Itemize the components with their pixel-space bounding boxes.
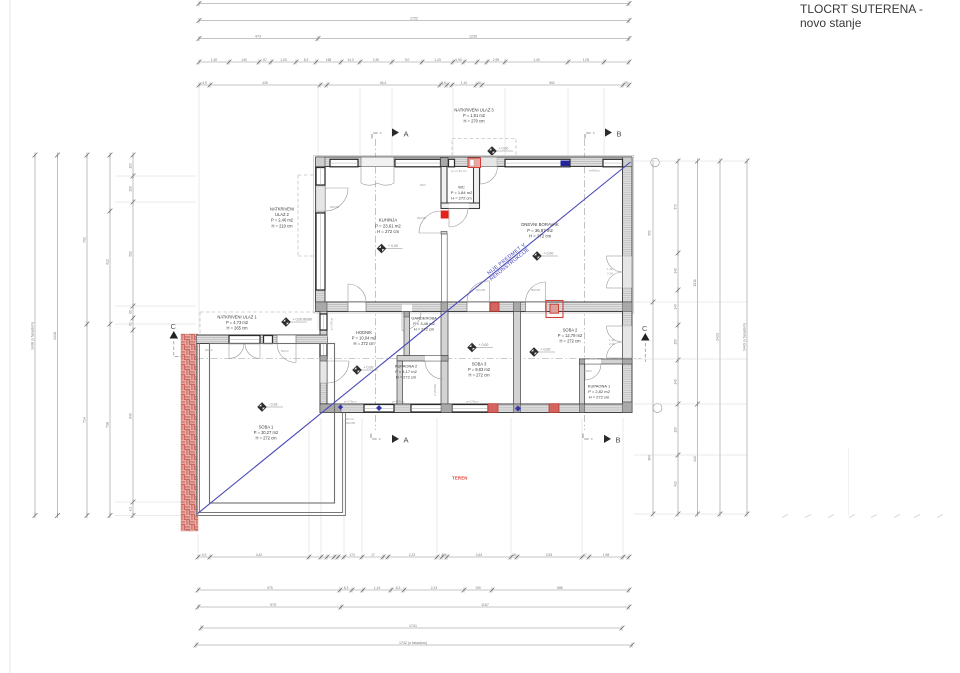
- svg-text:412: 412: [693, 456, 697, 462]
- svg-text:60: 60: [129, 310, 133, 314]
- svg-text:TLOCRT SUTERENA -: TLOCRT SUTERENA -: [800, 2, 923, 16]
- svg-text:174: 174: [349, 553, 355, 557]
- svg-text:P = 23,61 m2: P = 23,61 m2: [375, 223, 401, 228]
- svg-text:168: 168: [326, 58, 332, 62]
- svg-text:SOBA 1: SOBA 1: [259, 425, 274, 430]
- svg-text:412: 412: [106, 259, 110, 265]
- svg-text:H = 210 cm: H = 210 cm: [271, 223, 293, 228]
- svg-text:1741: 1741: [409, 624, 417, 628]
- svg-text:1418: 1418: [53, 332, 57, 340]
- svg-text:17: 17: [583, 553, 587, 557]
- svg-text:+ 0,00: + 0,00: [499, 147, 509, 151]
- svg-text:1,40: 1,40: [607, 267, 613, 271]
- svg-text:16: 16: [477, 81, 481, 85]
- svg-text:702: 702: [83, 237, 87, 243]
- svg-text:NATKRIVENI ULAZ 3: NATKRIVENI ULAZ 3: [454, 108, 494, 113]
- svg-text:2,20: 2,20: [607, 272, 613, 276]
- svg-text:2.VISINE: 2.VISINE: [433, 384, 437, 396]
- svg-text:1,05: 1,05: [583, 58, 590, 62]
- svg-text:SOBA 3: SOBA 3: [472, 362, 487, 367]
- svg-text:4,9: 4,9: [129, 507, 133, 512]
- svg-text:H = 272 cm: H = 272 cm: [377, 229, 400, 234]
- svg-text:552: 552: [549, 81, 555, 85]
- svg-text:NATKRIVENI: NATKRIVENI: [270, 207, 294, 212]
- svg-text:1,14: 1,14: [374, 586, 381, 590]
- svg-text:p=178cm: p=178cm: [344, 400, 357, 404]
- svg-text:90/14: 90/14: [205, 348, 213, 352]
- svg-text:4,9: 4,9: [202, 553, 207, 557]
- svg-text:502: 502: [129, 251, 133, 257]
- svg-text:H = 272 cm: H = 272 cm: [396, 375, 417, 380]
- svg-text:P = 4,73 m2: P = 4,73 m2: [226, 320, 249, 325]
- svg-text:H = 272 cm: H = 272 cm: [255, 436, 277, 441]
- svg-text:738: 738: [106, 422, 110, 428]
- svg-text:575: 575: [267, 586, 273, 590]
- svg-text:1230: 1230: [469, 34, 477, 38]
- svg-text:90/1: 90/1: [420, 183, 426, 187]
- svg-text:P = 4,17 m2: P = 4,17 m2: [395, 369, 417, 374]
- svg-text:1,98: 1,98: [603, 553, 610, 557]
- svg-text:2,30: 2,30: [609, 342, 615, 346]
- svg-text:1,00: 1,00: [280, 58, 287, 62]
- svg-text:+ 0,00: + 0,00: [541, 348, 551, 352]
- svg-text:90/205: 90/205: [330, 205, 340, 209]
- svg-text:1,30: 1,30: [211, 58, 218, 62]
- svg-text:+ 0,00: + 0,00: [388, 244, 398, 248]
- svg-text:novo stanje: novo stanje: [800, 16, 862, 30]
- svg-text:p=89cm: p=89cm: [589, 169, 600, 173]
- svg-text:90/205: 90/205: [531, 288, 541, 292]
- svg-text:412: 412: [674, 481, 678, 487]
- svg-text:150: 150: [674, 339, 678, 345]
- svg-text:H = 272 cm: H = 272 cm: [414, 327, 435, 332]
- svg-text:p=+1,30 cm: p=+1,30 cm: [451, 169, 467, 173]
- svg-text:4,9: 4,9: [202, 81, 207, 85]
- svg-text:190: 190: [475, 586, 481, 590]
- svg-text:P = 2,46 m2: P = 2,46 m2: [271, 218, 294, 223]
- svg-text:H = 272 cm: H = 272 cm: [559, 339, 581, 344]
- svg-text:B: B: [616, 436, 621, 445]
- svg-text:379: 379: [674, 204, 678, 210]
- svg-text:9,0: 9,0: [405, 58, 410, 62]
- svg-text:575: 575: [270, 603, 276, 607]
- svg-text:8,5: 8,5: [441, 81, 446, 85]
- svg-text:103: 103: [129, 163, 133, 169]
- svg-text:C: C: [642, 324, 648, 333]
- svg-text:P = 9,83 m2: P = 9,83 m2: [468, 367, 491, 372]
- svg-text:1511: 1511: [693, 279, 697, 287]
- svg-text:67: 67: [263, 58, 267, 62]
- svg-text:GARDEROBA: GARDEROBA: [411, 316, 437, 321]
- svg-text:143: 143: [674, 304, 678, 310]
- svg-text:1,93: 1,93: [455, 58, 462, 62]
- svg-text:1167: 1167: [481, 603, 489, 607]
- svg-text:2,30: 2,30: [373, 58, 380, 62]
- svg-text:140: 140: [674, 268, 678, 274]
- svg-text:ULAZ 2: ULAZ 2: [275, 212, 290, 217]
- svg-text:25: 25: [624, 81, 628, 85]
- svg-text:1722: 1722: [410, 16, 418, 20]
- svg-text:425: 425: [262, 81, 268, 85]
- svg-text:640: 640: [129, 413, 133, 419]
- svg-text:H = 265 cm: H = 265 cm: [226, 326, 248, 331]
- svg-text:1742 (s fasadom): 1742 (s fasadom): [399, 641, 427, 645]
- svg-text:1,43: 1,43: [434, 58, 441, 62]
- svg-text:H = 272 cm: H = 272 cm: [529, 234, 552, 239]
- svg-text:90/205: 90/205: [346, 421, 356, 425]
- svg-text:2,53: 2,53: [546, 553, 553, 557]
- svg-text:HODNIK: HODNIK: [356, 330, 372, 335]
- svg-text:H = 270 cm: H = 270 cm: [463, 119, 485, 124]
- svg-text:1,10: 1,10: [461, 81, 468, 85]
- svg-text:P = 10,04 m2: P = 10,04 m2: [352, 336, 377, 341]
- svg-text:+ 0,00 80/80: + 0,00 80/80: [293, 318, 313, 322]
- svg-text:P = 36,87 m2: P = 36,87 m2: [527, 228, 553, 233]
- svg-text:18: 18: [512, 553, 516, 557]
- svg-text:WC: WC: [458, 185, 465, 190]
- svg-text:1438 (s fasadom): 1438 (s fasadom): [31, 322, 35, 350]
- svg-text:50/14: 50/14: [281, 349, 289, 353]
- svg-text:C: C: [171, 322, 177, 331]
- svg-text:8,5: 8,5: [442, 553, 447, 557]
- svg-text:H = 272 cm: H = 272 cm: [451, 196, 472, 201]
- svg-text:2,99: 2,99: [493, 58, 500, 62]
- svg-text:46,4: 46,4: [380, 81, 387, 85]
- svg-text:473: 473: [255, 34, 261, 38]
- svg-text:1,40: 1,40: [533, 58, 540, 62]
- svg-text:H = 272 cm: H = 272 cm: [468, 373, 490, 378]
- svg-text:H = 272 cm: H = 272 cm: [589, 395, 610, 400]
- svg-text:P = 2,82 m2: P = 2,82 m2: [588, 389, 610, 394]
- svg-text:H = 272 cm: H = 272 cm: [353, 341, 375, 346]
- svg-text:1423: 1423: [716, 333, 720, 341]
- svg-text:502: 502: [648, 230, 652, 236]
- svg-text:+ 0,00: + 0,00: [364, 366, 374, 370]
- svg-text:2,22: 2,22: [409, 553, 416, 557]
- svg-text:P = 1,91 m2: P = 1,91 m2: [463, 113, 486, 118]
- svg-text:- 0,33: - 0,33: [269, 403, 278, 407]
- svg-text:14,3: 14,3: [347, 58, 354, 62]
- svg-text:p=178cm: p=178cm: [392, 400, 405, 404]
- svg-text:KUPAONA 2: KUPAONA 2: [395, 364, 418, 369]
- svg-text:p=178cm: p=178cm: [466, 400, 479, 404]
- svg-text:B: B: [617, 129, 622, 138]
- svg-text:8,3: 8,3: [396, 586, 401, 590]
- svg-text:2,63: 2,63: [476, 553, 483, 557]
- svg-text:+ 0,00: + 0,00: [479, 343, 489, 347]
- svg-text:KUPAONA 1: KUPAONA 1: [588, 384, 611, 389]
- svg-text:60/2: 60/2: [586, 369, 592, 373]
- svg-text:SOBA 2: SOBA 2: [563, 328, 578, 333]
- svg-text:NATKRIVENI ULAZ 1: NATKRIVENI ULAZ 1: [217, 315, 257, 320]
- svg-text:2,13: 2,13: [431, 586, 438, 590]
- svg-text:364: 364: [648, 455, 652, 461]
- svg-text:4,42: 4,42: [256, 553, 263, 557]
- svg-text:686: 686: [557, 586, 563, 590]
- svg-text:+ 0,00: + 0,00: [544, 252, 554, 256]
- svg-text:17: 17: [371, 553, 375, 557]
- svg-text:P = 3,46 m2: P = 3,46 m2: [413, 321, 435, 326]
- svg-text:90/205: 90/205: [476, 288, 486, 292]
- svg-text:140: 140: [674, 379, 678, 385]
- svg-text:1443 (s fasadom): 1443 (s fasadom): [743, 323, 747, 351]
- svg-text:KUHINJA: KUHINJA: [379, 218, 398, 223]
- svg-text:DNEVNI BORAVAK: DNEVNI BORAVAK: [521, 222, 559, 227]
- svg-text:P = 30,27 m2: P = 30,27 m2: [254, 430, 279, 435]
- svg-text:P = 1,84 m2: P = 1,84 m2: [451, 190, 473, 195]
- svg-text:p=178cm: p=178cm: [330, 317, 334, 330]
- svg-text:140: 140: [241, 58, 247, 62]
- svg-text:TEREN: TEREN: [452, 476, 468, 481]
- svg-text:90/205: 90/205: [417, 216, 427, 220]
- svg-text:P = 12,79 m2: P = 12,79 m2: [558, 333, 583, 338]
- svg-text:8,3: 8,3: [344, 586, 349, 590]
- svg-text:714: 714: [83, 417, 87, 423]
- svg-text:100: 100: [129, 186, 133, 192]
- svg-text:8,3: 8,3: [304, 58, 309, 62]
- svg-text:100: 100: [674, 427, 678, 433]
